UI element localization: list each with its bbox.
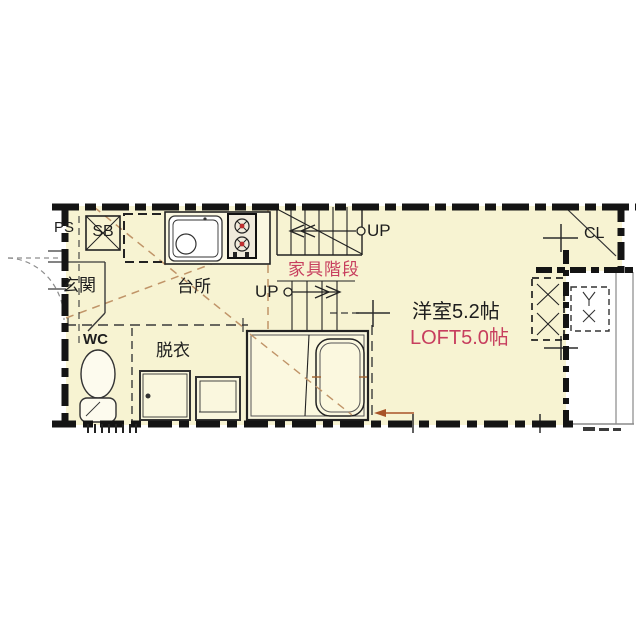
label-closet: CL <box>584 226 604 242</box>
toilet-icon <box>80 350 116 422</box>
floor-plan-drawing <box>0 0 640 640</box>
label-dressing-room: 脱衣 <box>156 342 190 359</box>
label-loft: LOFT5.0帖 <box>410 328 509 348</box>
bathroom-unit <box>247 331 368 420</box>
label-western-room: 洋室5.2帖 <box>412 302 500 322</box>
kitchen-counter <box>165 212 270 264</box>
label-furniture-stairs: 家具階段 <box>288 261 360 278</box>
sink-icon <box>169 216 222 261</box>
label-kitchen: 台所 <box>177 278 211 295</box>
washing-machine-icon <box>140 371 190 420</box>
label-toilet: WC <box>83 332 108 347</box>
label-entrance: 玄関 <box>62 277 96 294</box>
label-up-upper: UP <box>367 222 391 239</box>
laundry-cabinet-icon <box>196 377 240 420</box>
floor-plan: PS SB 玄関 台所 UP 家具階段 UP CL 洋室5.2帖 LOFT5.0… <box>0 0 640 640</box>
stove-icon <box>228 214 256 258</box>
label-storage-box: SB <box>87 224 119 240</box>
label-up-lower: UP <box>255 283 279 300</box>
label-pipe-space: PS <box>54 220 74 235</box>
exterior-step-dashes <box>583 427 621 431</box>
